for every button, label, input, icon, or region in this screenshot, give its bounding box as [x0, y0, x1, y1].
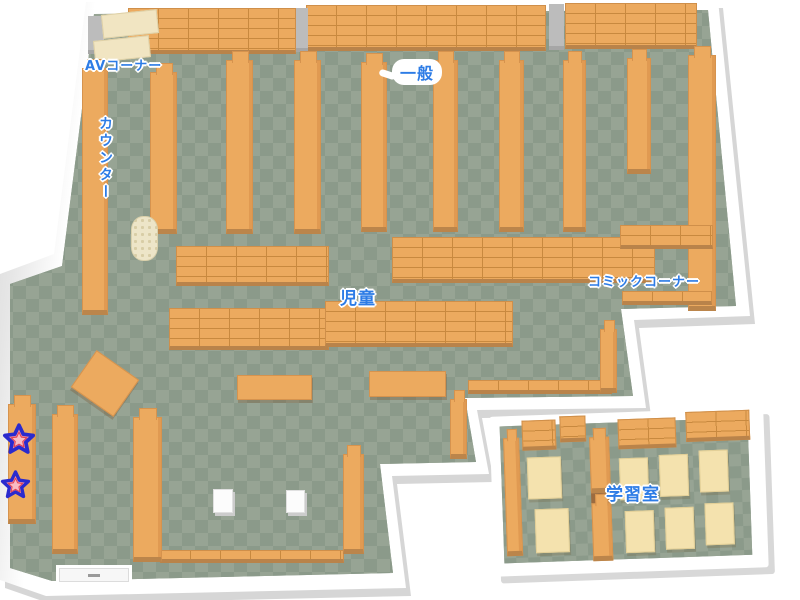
- area-label-comic-corner: コミックコーナー: [588, 271, 700, 290]
- area-label-children: 児童: [340, 284, 376, 309]
- area-label-counter: カウンター: [95, 116, 115, 201]
- star-marker-2[interactable]: [0, 470, 31, 501]
- wall-bookshelf: [617, 417, 676, 449]
- study-table: [527, 456, 562, 499]
- area-label-study-room: 学習室: [606, 480, 660, 505]
- wall-bookshelf: [559, 415, 586, 442]
- area-label-av-corner: AVコーナー: [85, 55, 162, 74]
- star-marker-1[interactable]: [2, 423, 36, 457]
- star-icon: [2, 423, 36, 457]
- bookshelf: [591, 503, 613, 562]
- area-label-general: 一般: [392, 59, 442, 85]
- study-table: [535, 508, 571, 553]
- wall-bookshelf: [685, 410, 750, 442]
- library-floor-map: AVコーナー 一般 カウンター 児童 コミックコーナー 学習室: [0, 0, 800, 600]
- study-table: [699, 450, 729, 493]
- study-table: [704, 502, 734, 545]
- study-table: [625, 510, 655, 553]
- study-table: [659, 454, 689, 497]
- star-icon: [0, 470, 31, 501]
- study-table: [665, 507, 695, 550]
- wall-bookshelf: [521, 420, 556, 451]
